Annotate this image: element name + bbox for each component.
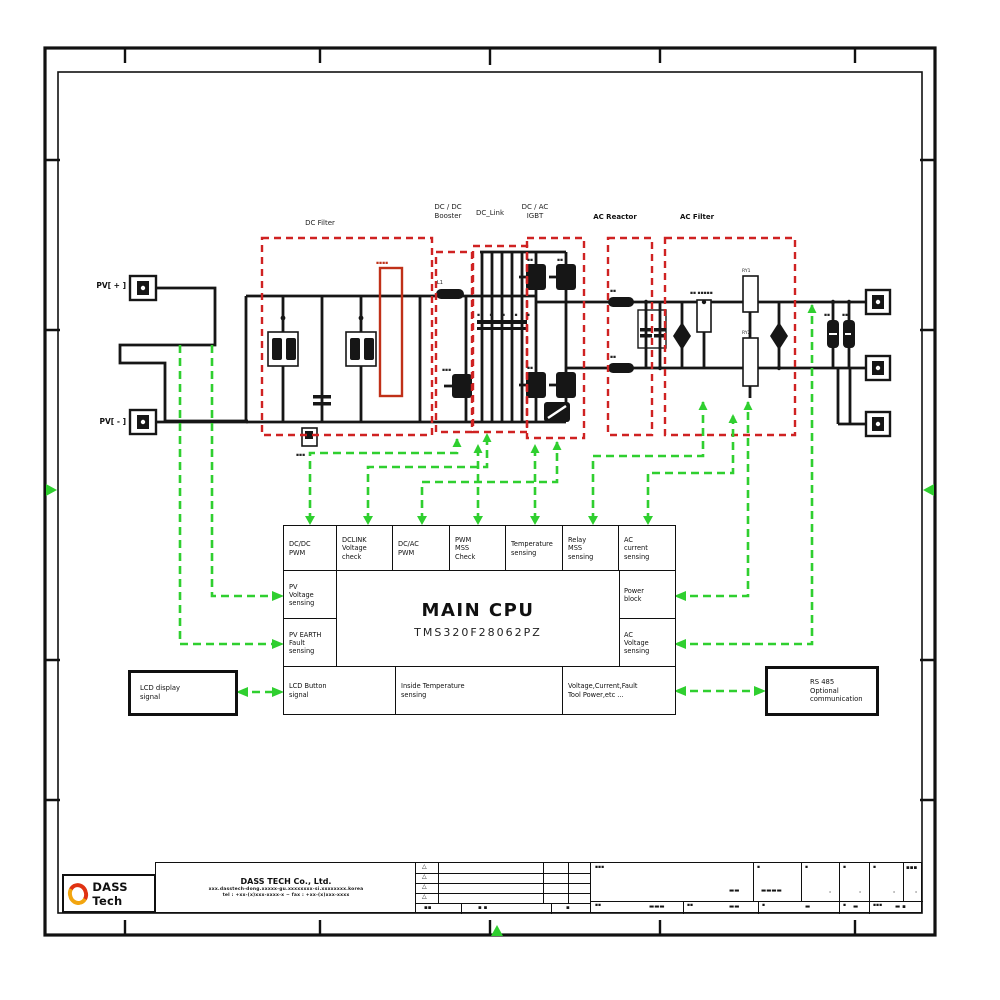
ycap-plate1 — [313, 395, 331, 399]
field-value: ▬▬▬ — [649, 905, 665, 911]
booster-igbt — [452, 374, 472, 398]
cpu-block-pv-earth-fault-sensing: PV EARTH Fault sensing — [283, 618, 339, 668]
main-cpu-title: MAIN CPU — [422, 600, 535, 621]
cpu-block-dclink-voltage-check: DCLINK Voltage check — [336, 525, 394, 572]
lc-cap-plate — [640, 334, 652, 338]
power-components — [130, 264, 890, 446]
arrow-down-icon — [643, 516, 653, 525]
mov2-label: ▪▪ — [842, 313, 848, 318]
reactor-l-label: ▪▪ — [610, 289, 616, 294]
dasstech-logo-icon — [66, 880, 91, 907]
relay-ry2 — [743, 338, 758, 386]
field-label: ▪▪ — [595, 904, 601, 909]
dclink-cap — [487, 320, 497, 324]
field-label: ▪▪ — [687, 904, 693, 909]
arrow-up-icon — [483, 433, 492, 442]
field-label: ▪▪▪ — [873, 904, 882, 909]
choke1-winding-b — [286, 338, 296, 360]
titleblock-logo-cell: DASS Tech — [62, 874, 156, 913]
ac-reactor-n — [608, 363, 634, 373]
ctl-ac-current — [648, 415, 733, 521]
field-value: ▬ — [853, 905, 858, 911]
igbt-q4 — [556, 372, 576, 398]
field-label: ▪ — [843, 904, 846, 909]
pv-plus-connector-hole — [141, 286, 145, 290]
dclink-cap — [477, 327, 487, 330]
arrow-up-icon — [531, 444, 540, 453]
right-center-arrow-icon — [923, 484, 934, 496]
pv-plus-wire — [120, 288, 248, 421]
arrow-up-icon — [808, 304, 817, 313]
igbt-q3 — [526, 372, 546, 398]
ac-out-n-connector-hole — [876, 366, 880, 370]
field-value: · — [915, 891, 917, 897]
field-value: · — [893, 891, 895, 897]
field-value: ▬▬ — [729, 905, 739, 911]
igbt-q2-label: ▪▪ — [557, 258, 563, 263]
booster-leg-wire — [444, 296, 466, 422]
revision-footer-mark: ▪ ▪ — [478, 906, 487, 912]
film-cap-label: ▪▪ ▪▪▪▪▪ — [690, 291, 713, 296]
field-label: ▪ — [805, 866, 808, 871]
junction-dot — [847, 300, 851, 304]
cpu-block-lcd-button-signal: LCD Button signal — [283, 666, 397, 715]
cpu-block-pwm-mss-check: PWM MSS Check — [449, 525, 507, 572]
relay-contact-2 — [770, 322, 788, 350]
revision-mark-icon: △ — [422, 874, 427, 880]
arrow-up-icon — [553, 441, 562, 450]
dclink-cap — [497, 327, 507, 330]
dclink-cap — [497, 320, 507, 324]
field-label: ▪▪▪ — [906, 866, 917, 872]
arrow-down-icon — [305, 516, 315, 525]
titleblock-revision-table: △ △ △ △ ▪▪ ▪ ▪ ▪ — [415, 862, 591, 913]
red-component-label: ▪▪▪▪ — [376, 261, 388, 266]
cpu-block-dcac-pwm: DC/AC PWM — [392, 525, 451, 572]
cpu-block-ac-voltage-sensing: AC Voltage sensing — [618, 618, 676, 668]
revision-mark-icon: △ — [422, 894, 427, 900]
junction-dot — [777, 366, 781, 370]
drawing-frame — [45, 48, 935, 935]
ac-reactor-l — [608, 297, 634, 307]
ac-out-pe-connector-hole — [876, 422, 880, 426]
lcd-display-signal-box: LCD display signal — [128, 670, 238, 716]
left-center-arrow-icon — [46, 484, 57, 496]
booster-inductor — [436, 289, 464, 299]
rs485-communication-box: RS 485 Optional communication — [765, 666, 879, 716]
company-name: DASS TECH Co., Ltd. — [241, 877, 332, 886]
dclink-cap — [507, 327, 517, 330]
field-value: ▬ — [805, 905, 810, 911]
arrow-up-icon — [699, 401, 708, 410]
mov1-label: ▪▪ — [824, 313, 830, 318]
lc-cap-plate — [654, 328, 666, 332]
arrow-down-icon — [417, 516, 427, 525]
arrow-down-icon — [588, 516, 598, 525]
field-value: ▬▬ — [729, 889, 739, 895]
dc-filter-label: DC Filter — [285, 219, 355, 228]
dc-link-label: DC_Link — [468, 209, 512, 218]
igbt-label: DC / AC IGBT — [512, 203, 558, 221]
titleblock-fields: ▪▪▪ ▬▬ ▪ ▬▬▬▬ ▪ · ▪ · ▪ · ▪▪▪ · ▪▪ ▬▬▬ ▪… — [590, 862, 922, 913]
ac-filter-label: AC Filter — [664, 213, 730, 222]
field-value: · — [829, 891, 831, 897]
arrow-down-icon — [530, 516, 540, 525]
revision-mark-icon: △ — [422, 864, 427, 870]
company-phone: tel : +xx-(x)xxx-xxxx-x ~ fax : +xx-(x)x… — [223, 893, 350, 898]
field-value: ▬▬▬▬ — [761, 889, 782, 895]
dasstech-logo-text: DASS Tech — [92, 880, 154, 908]
choke2-winding-b — [364, 338, 374, 360]
frame-inner-border — [58, 72, 922, 913]
ctl-pv-earth — [180, 345, 281, 644]
inductor-label: L1 — [437, 280, 443, 286]
ctl-power-block — [677, 402, 748, 596]
pv-plus-label: PV[ + ] — [88, 281, 126, 290]
reactor-n-label: ▪▪ — [610, 355, 616, 360]
cpu-block-inside-temperature-sensing: Inside Temperature sensing — [395, 666, 564, 715]
dclink-cap — [517, 327, 527, 330]
field-label: ▪ — [843, 866, 846, 871]
pv-minus-label: PV[ - ] — [88, 417, 126, 426]
arrow-down-icon — [473, 516, 483, 525]
choke2-winding-a — [350, 338, 360, 360]
junction-dot — [281, 316, 286, 321]
arrow-up-icon — [744, 401, 753, 410]
revision-footer-mark: ▪▪ — [424, 906, 431, 912]
junction-dot — [644, 300, 648, 304]
cpu-block-power-block: Power block — [618, 570, 676, 620]
junction-dot — [831, 300, 835, 304]
cpu-block-dcdc-pwm: DC/DC PWM — [283, 525, 339, 572]
bottom-center-arrow-icon — [491, 925, 503, 936]
field-value: ▬ ▪ — [895, 905, 906, 911]
cpu-block-ac-current-sensing: AC current sensing — [618, 525, 676, 572]
ycap-plate2 — [313, 402, 331, 406]
igbt-q1 — [526, 264, 546, 290]
lc-cap-plate — [640, 328, 652, 332]
junction-dot — [359, 316, 364, 321]
ctl-dcdc-pwm — [310, 439, 457, 521]
company-address: xxx.dasstech-dong.xxxxx-gu.xxxxxxxx-si.x… — [209, 887, 364, 892]
dclink-cap — [507, 320, 517, 324]
junction-dot — [658, 366, 662, 370]
arrow-up-icon — [474, 444, 483, 453]
cpu-block-voltage-current-fault: Voltage,Current,Fault Tool Power,etc ... — [562, 666, 676, 715]
dclink-cap — [477, 320, 487, 324]
schematic-svg: L1 RY1 RY2 ▪▪▪▪ ▪ ▪ ▪ ▪ ▪ ▪▪ ▪▪▪▪▪ ▪▪ ▪▪… — [0, 0, 1000, 1000]
booster-label: DC / DC Booster — [424, 203, 472, 221]
arrow-up-icon — [729, 414, 738, 423]
earth-sensor-label: ▪▪▪ — [296, 453, 305, 458]
frame-zone-ticks — [45, 48, 935, 935]
relay1-label: RY1 — [742, 268, 751, 274]
dclink-caps-label: ▪ ▪ ▪ ▪ ▪ — [477, 313, 534, 318]
dclink-cap — [517, 320, 527, 324]
igbt-q3-label: ▪▪ — [527, 366, 533, 371]
cpu-block-relay-mss-sensing: Relay MSS sensing — [562, 525, 620, 572]
drawing-canvas: L1 RY1 RY2 ▪▪▪▪ ▪ ▪ ▪ ▪ ▪ ▪▪ ▪▪▪▪▪ ▪▪ ▪▪… — [0, 0, 1000, 1000]
revision-mark-icon: △ — [422, 884, 427, 890]
relay2-label: RY2 — [742, 330, 751, 336]
relay-ry1 — [743, 276, 758, 312]
frame-outer-border — [45, 48, 935, 935]
field-label: ▪ — [762, 904, 765, 909]
arrow-down-icon — [363, 516, 373, 525]
titleblock-company-cell: DASS TECH Co., Ltd. xxx.dasstech-dong.xx… — [155, 862, 417, 913]
field-label: ▪ — [757, 866, 760, 871]
dclink-cap — [487, 327, 497, 330]
ac-reactor-label: AC Reactor — [582, 213, 648, 222]
cpu-block-pv-voltage-sensing: PV Voltage sensing — [283, 570, 339, 620]
relay-contact-1 — [673, 322, 691, 350]
main-cpu-part-number: TMS320F28062PZ — [414, 626, 542, 639]
choke1-winding-a — [272, 338, 282, 360]
junction-dot — [702, 300, 706, 304]
ac-out-l-connector-hole — [876, 300, 880, 304]
revision-footer-mark: ▪ — [566, 906, 570, 912]
field-label: ▪ — [873, 866, 876, 871]
cpu-block-temperature-sensing: Temperature sensing — [505, 525, 564, 572]
field-label: ▪▪▪ — [595, 866, 604, 871]
igbt-q1-label: ▪▪ — [527, 258, 533, 263]
booster-igbt-label: ▪▪▪ — [442, 368, 451, 373]
arrow-up-icon — [453, 438, 462, 447]
field-value: · — [859, 891, 861, 897]
main-cpu-block: MAIN CPU TMS320F28062PZ — [336, 570, 620, 668]
igbt-q2 — [556, 264, 576, 290]
pv-minus-connector-hole — [141, 420, 145, 424]
ctl-dclink-voltage — [368, 434, 487, 521]
inner-red-component-box — [380, 268, 402, 396]
film-cap — [697, 300, 711, 332]
